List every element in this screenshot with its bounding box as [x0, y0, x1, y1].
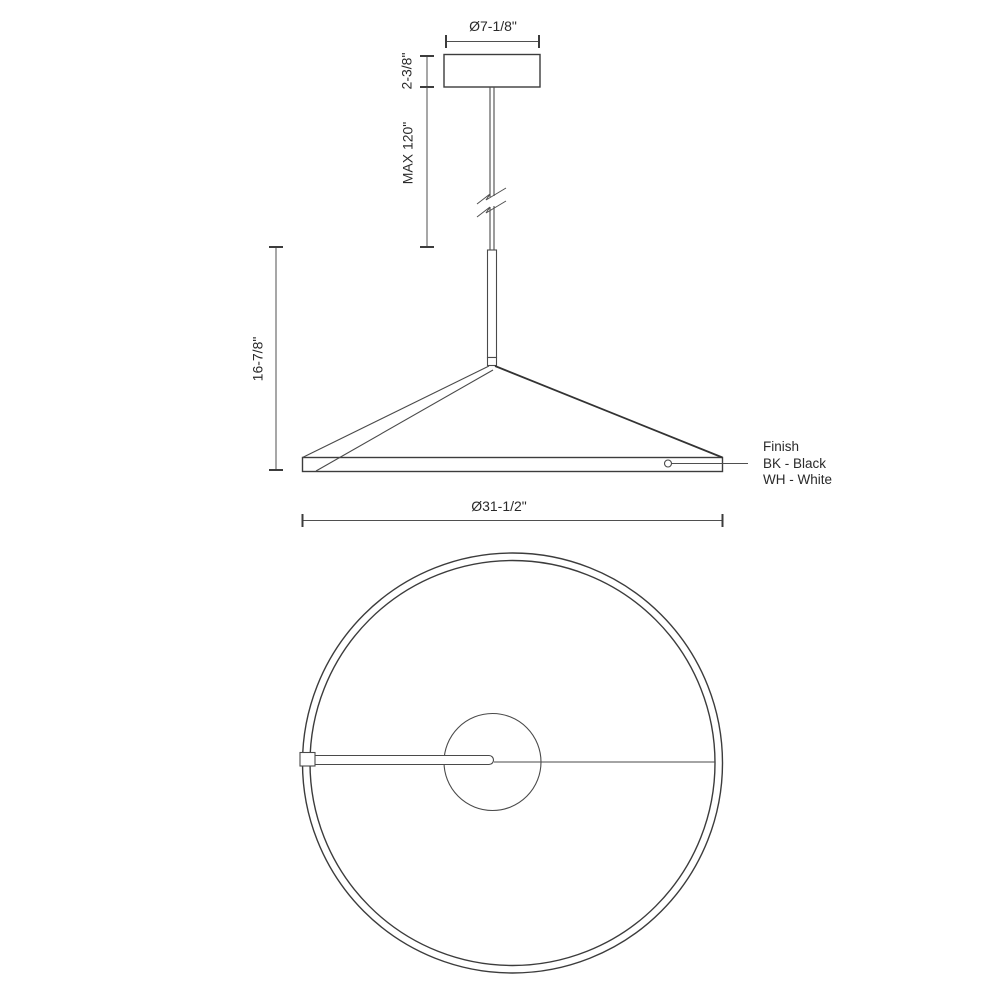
dim-fixture-height: 16-7/8": [250, 247, 283, 470]
arm-ring-connector: [300, 753, 315, 767]
dimension-drawing-page: Ø7-1/8" 2-3/8" MAX 120": [0, 0, 1000, 1000]
elevation-view: Ø7-1/8" 2-3/8" MAX 120": [250, 18, 832, 527]
suspension-cable: [490, 87, 494, 250]
suspension-arms: [303, 366, 723, 471]
canopy-height-label: 2-3/8": [399, 53, 415, 90]
finish-callout-point: [665, 460, 672, 467]
finish-heading: Finish: [763, 439, 799, 454]
stem-outline: [488, 250, 497, 358]
stem-joint: [488, 358, 497, 366]
finish-option-black: BK - Black: [763, 456, 826, 471]
dim-max-drop: MAX 120": [400, 87, 434, 247]
ring-side-outline: [303, 458, 723, 472]
pendant-fixture-drawing: Ø7-1/8" 2-3/8" MAX 120": [0, 0, 1000, 1000]
finish-option-white: WH - White: [763, 472, 832, 487]
ring-diameter-label: Ø31-1/2": [471, 498, 527, 514]
canopy-outline: [444, 55, 540, 88]
max-drop-label: MAX 120": [400, 122, 416, 185]
finish-callout: Finish BK - Black WH - White: [665, 439, 833, 487]
cable-break-symbol: [477, 188, 506, 217]
dim-canopy-height: 2-3/8": [399, 53, 434, 90]
plan-view: [300, 553, 723, 973]
fixture-height-label: 16-7/8": [250, 337, 266, 382]
support-arm-top: [314, 756, 494, 765]
canopy-diameter-label: Ø7-1/8": [469, 18, 517, 34]
dim-ring-diameter: Ø31-1/2": [303, 498, 723, 527]
dim-canopy-diameter: Ø7-1/8": [446, 18, 539, 48]
